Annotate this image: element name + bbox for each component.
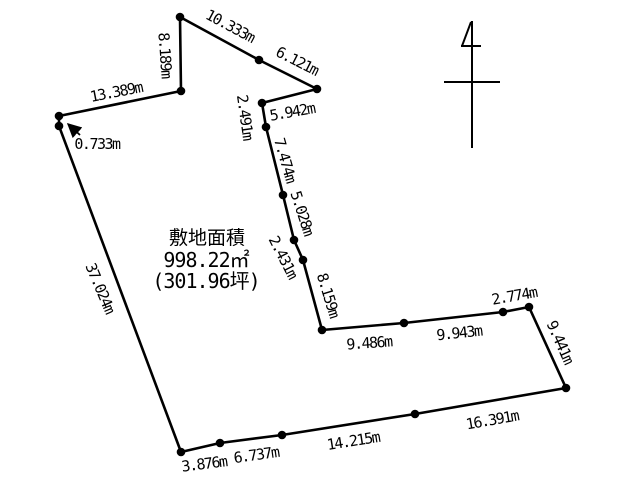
survey-diagram: 10.333m 6.121m 5.942m 2.491m 7.474m 5.02… bbox=[0, 0, 640, 480]
vertex-dot bbox=[318, 326, 327, 335]
segment-label: 9.441m bbox=[543, 318, 578, 368]
vertex-dot bbox=[279, 191, 288, 200]
segment-label: 8.189m bbox=[154, 32, 175, 80]
vertex-dot bbox=[258, 99, 267, 108]
survey-diagram-canvas: 10.333m 6.121m 5.942m 2.491m 7.474m 5.02… bbox=[0, 0, 640, 480]
vertex-dot bbox=[176, 13, 185, 22]
segment-label: 6.121m bbox=[273, 43, 323, 80]
vertex-dot bbox=[177, 87, 186, 96]
vertex-dot bbox=[290, 236, 299, 245]
site-area-annotation: 敷地面積 998.22㎡ (301.96坪) bbox=[152, 227, 259, 293]
segment-label: 10.333m bbox=[203, 6, 259, 47]
vertex-dot bbox=[278, 431, 287, 440]
segment-label: 9.943m bbox=[436, 322, 484, 345]
segment-label: 13.389m bbox=[88, 78, 145, 106]
vertex-dot bbox=[255, 56, 264, 65]
segment-label: 0.733m bbox=[74, 135, 121, 153]
vertex-dot bbox=[55, 112, 64, 121]
segment-label: 5.942m bbox=[268, 99, 317, 125]
north-arrow-icon bbox=[444, 21, 500, 148]
site-area-title: 敷地面積 bbox=[169, 227, 245, 249]
leader-arrow-icon bbox=[68, 124, 80, 135]
segment-label: 2.491m bbox=[233, 93, 257, 142]
vertex-dot bbox=[411, 410, 420, 419]
segment-labels: 10.333m 6.121m 5.942m 2.491m 7.474m 5.02… bbox=[74, 6, 578, 476]
vertex-dot bbox=[216, 439, 225, 448]
vertex-dot bbox=[177, 448, 186, 457]
vertex-dot bbox=[499, 308, 508, 317]
vertex-dot bbox=[400, 319, 409, 328]
vertex-dot bbox=[55, 122, 64, 131]
segment-label: 14.215m bbox=[326, 428, 382, 454]
vertex-dot bbox=[562, 384, 571, 393]
segment-label: 16.391m bbox=[464, 406, 520, 433]
segment-label: 3.876m bbox=[180, 452, 228, 476]
segment-label: 9.486m bbox=[346, 332, 394, 353]
vertex-dot bbox=[262, 123, 271, 132]
vertex-dot bbox=[299, 256, 308, 265]
segment-label: 6.737m bbox=[232, 443, 281, 467]
vertex-dot bbox=[313, 85, 322, 94]
vertex-dot bbox=[525, 303, 534, 312]
site-area-tsubo: (301.96坪) bbox=[152, 269, 259, 293]
